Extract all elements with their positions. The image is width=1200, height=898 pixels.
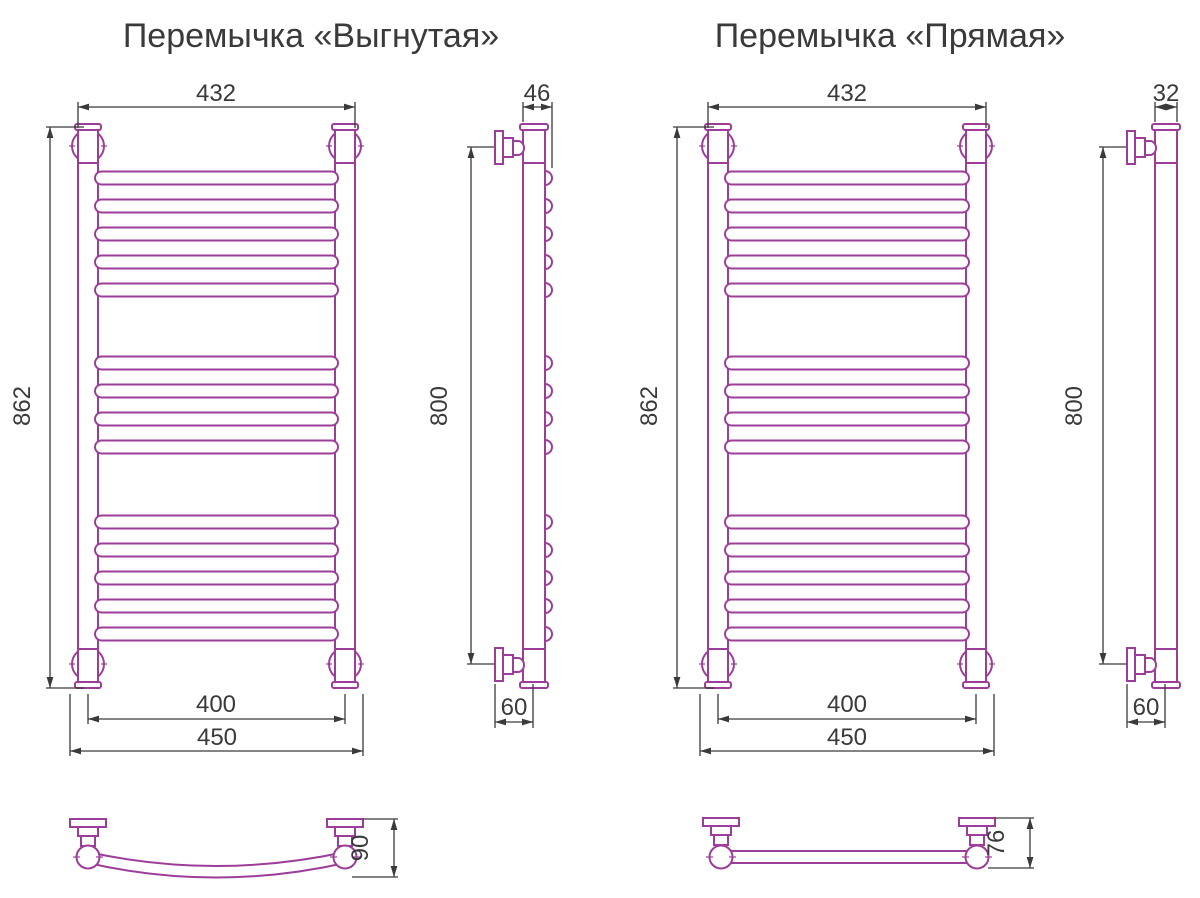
curved-front-view: 432 862 400 450 bbox=[9, 80, 364, 756]
dim-mount-width: 400 bbox=[718, 691, 976, 724]
curved-title: Перемычка «Выгнутая» bbox=[123, 17, 499, 55]
wall-bracket-top bbox=[495, 131, 524, 164]
dim-mount-width: 400 bbox=[88, 691, 345, 724]
rung bbox=[95, 256, 338, 269]
straight-front-view: 432 862 400 450 bbox=[636, 80, 995, 756]
wall-bracket-bottom bbox=[1127, 648, 1156, 681]
rung bbox=[725, 172, 969, 185]
rung bbox=[95, 441, 338, 454]
rung bbox=[725, 600, 969, 613]
rung bbox=[725, 413, 969, 426]
dim-side-height: 800 bbox=[1061, 147, 1126, 664]
dim-straight-side-bottom-depth: 60 bbox=[1133, 694, 1160, 721]
dim-height: 862 bbox=[9, 127, 84, 688]
dim-straight-crossbar-depth: 76 bbox=[983, 830, 1010, 857]
straight-title: Перемычка «Прямая» bbox=[715, 17, 1066, 55]
dim-top-width: 432 bbox=[708, 80, 986, 128]
dim-side-height: 800 bbox=[426, 147, 494, 664]
rung bbox=[725, 516, 969, 529]
dim-curved-front-top-width: 432 bbox=[196, 80, 236, 107]
technical-drawing-page: Перемычка «Выгнутая» bbox=[0, 0, 1200, 898]
dim-curved-side-height: 800 bbox=[426, 386, 453, 426]
rung bbox=[95, 357, 338, 370]
curved-model-drawing: Перемычка «Выгнутая» bbox=[9, 17, 552, 878]
rung bbox=[95, 516, 338, 529]
dim-height: 862 bbox=[636, 127, 714, 688]
rung-end-bumps bbox=[545, 171, 552, 641]
curved-side-view: 46 800 60 bbox=[426, 80, 552, 728]
rung-group bbox=[95, 172, 338, 641]
crossbar-bracket-left bbox=[703, 818, 739, 845]
rung bbox=[725, 228, 969, 241]
rung bbox=[725, 628, 969, 641]
rung bbox=[725, 441, 969, 454]
rung bbox=[95, 600, 338, 613]
rung bbox=[95, 172, 338, 185]
dim-straight-front-overall-width: 450 bbox=[827, 724, 867, 751]
rung bbox=[95, 572, 338, 585]
rung bbox=[95, 200, 338, 213]
tube-profile bbox=[520, 124, 548, 688]
rung bbox=[95, 385, 338, 398]
rung bbox=[725, 357, 969, 370]
rung bbox=[725, 544, 969, 557]
dim-straight-front-top-width: 432 bbox=[827, 80, 867, 107]
straight-side-view: 32 800 60 bbox=[1061, 80, 1180, 728]
dim-curved-side-bottom-depth: 60 bbox=[501, 694, 528, 721]
rung bbox=[725, 256, 969, 269]
wall-bracket-top bbox=[1127, 131, 1156, 164]
dim-curved-side-top-depth: 46 bbox=[524, 80, 551, 107]
rung-group bbox=[725, 172, 969, 641]
dim-side-bottom-depth: 60 bbox=[495, 684, 533, 728]
rung bbox=[725, 572, 969, 585]
rung bbox=[95, 284, 338, 297]
tube-profile bbox=[1152, 124, 1180, 688]
rung bbox=[95, 228, 338, 241]
rung bbox=[95, 544, 338, 557]
dim-straight-front-mount-width: 400 bbox=[827, 691, 867, 718]
rung bbox=[95, 628, 338, 641]
towel-rail-drawing: Перемычка «Выгнутая» bbox=[0, 0, 1200, 898]
rung bbox=[725, 200, 969, 213]
dim-curved-front-height: 862 bbox=[9, 386, 36, 426]
curved-crossbar-view: 90 bbox=[70, 819, 398, 878]
dim-straight-front-height: 862 bbox=[636, 386, 663, 426]
dim-straight-side-top-depth: 32 bbox=[1153, 80, 1180, 107]
crossbar-curve-top bbox=[88, 852, 345, 866]
wall-bracket-bottom bbox=[495, 648, 524, 681]
rung bbox=[95, 413, 338, 426]
straight-crossbar-view: 76 bbox=[703, 818, 1034, 869]
crossbar-joint-left bbox=[706, 846, 736, 869]
rung bbox=[725, 284, 969, 297]
straight-model-drawing: Перемычка «Прямая» bbox=[636, 17, 1180, 869]
dim-side-top-depth: 32 bbox=[1153, 80, 1180, 122]
dim-side-bottom-depth: 60 bbox=[1127, 684, 1165, 728]
dim-curved-front-overall-width: 450 bbox=[197, 724, 237, 751]
dim-straight-side-height: 800 bbox=[1061, 386, 1088, 426]
dim-curved-crossbar-depth: 90 bbox=[347, 835, 374, 862]
crossbar-bracket-left bbox=[70, 819, 106, 846]
dim-top-width: 432 bbox=[78, 80, 355, 128]
rung bbox=[725, 385, 969, 398]
dim-curved-front-mount-width: 400 bbox=[196, 691, 236, 718]
